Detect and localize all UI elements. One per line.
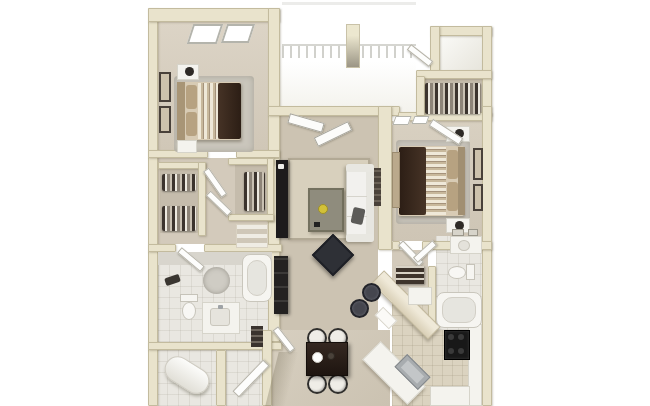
bedroom2-window-2 bbox=[412, 116, 430, 124]
kitchen-range-burner bbox=[448, 334, 454, 340]
closet1-hanging-clothes-bottom bbox=[162, 206, 196, 231]
kitchen-range-burner-4 bbox=[458, 348, 464, 354]
bedroom1-espresso-throw bbox=[218, 83, 241, 139]
bathroom2-mirror-cabinet-2 bbox=[468, 229, 478, 236]
wall-closet2-right bbox=[267, 158, 274, 222]
bathroom1-toilet-bowl bbox=[182, 302, 196, 320]
closet2-hanging-clothes bbox=[244, 172, 265, 211]
bathroom2-bathtub-basin bbox=[442, 297, 476, 323]
bedroom1-headboard bbox=[177, 82, 185, 140]
bedroom1-lamp bbox=[185, 67, 194, 76]
bedroom2-headboard bbox=[458, 147, 465, 215]
bathroom1-bathtub-basin bbox=[247, 260, 267, 296]
entry-coat-shelf bbox=[251, 326, 263, 347]
bedroom1-pillows bbox=[186, 85, 197, 109]
bathroom1-sink bbox=[210, 308, 230, 326]
closet-tr-upper-floor bbox=[440, 36, 482, 70]
balcony-column bbox=[346, 24, 360, 68]
bathroom1-round-rug bbox=[203, 267, 230, 294]
kitchen-counter-right bbox=[468, 324, 482, 406]
kitchen-pantry-shelves bbox=[396, 266, 424, 284]
wall-bedroom1-top bbox=[148, 8, 280, 22]
living-console-table bbox=[374, 168, 381, 206]
bathroom2-mirror-cabinet bbox=[452, 229, 464, 236]
bathroom2-toilet-bowl bbox=[448, 266, 466, 279]
living-remote bbox=[314, 222, 320, 227]
bedroom2-wall-art-2 bbox=[473, 184, 483, 211]
wall-balcony-right bbox=[416, 76, 425, 116]
bedroom2-window bbox=[392, 116, 411, 125]
linen-shelves bbox=[236, 224, 268, 248]
bathroom1-toilet-tank bbox=[180, 294, 198, 302]
bedroom2-espresso-throw bbox=[399, 147, 426, 215]
wall-closet-tr-divider bbox=[416, 70, 492, 79]
closet-tr-hanging-clothes bbox=[425, 83, 481, 114]
bedroom2-pillows-2 bbox=[447, 182, 458, 211]
kitchen-cabinet-upper bbox=[408, 287, 432, 305]
living-media-console bbox=[276, 160, 288, 238]
dining-centerpiece-bowl bbox=[327, 352, 335, 360]
wall-utility-right bbox=[216, 350, 226, 406]
bedroom1-nightstand-bottom bbox=[177, 140, 197, 153]
kitchen-range-burner-3 bbox=[448, 348, 454, 354]
bedroom2-pillows bbox=[447, 150, 458, 179]
bedroom2-wall-art bbox=[473, 148, 483, 180]
bathroom2-toilet-tank bbox=[466, 264, 475, 280]
wall-bathroom1-top-left bbox=[148, 244, 176, 252]
living-sofa-back-cushions bbox=[366, 166, 374, 240]
living-sofa-armrest-bottom bbox=[346, 234, 374, 242]
bathroom1-faucet bbox=[218, 305, 223, 309]
wall-bedroom1-balcony bbox=[268, 8, 280, 158]
living-bookcase bbox=[274, 256, 288, 314]
bedroom1-pillows-2 bbox=[186, 112, 197, 136]
floor-plan-render bbox=[0, 0, 650, 406]
bathroom2-sink bbox=[458, 240, 470, 251]
living-media-speaker bbox=[278, 164, 284, 169]
wall-closet-tr-left bbox=[430, 26, 440, 76]
living-yellow-bowl bbox=[318, 204, 328, 214]
balcony-top-rail bbox=[282, 2, 416, 5]
bedroom1-striped-duvet bbox=[198, 83, 218, 139]
dining-chair-4 bbox=[328, 374, 348, 394]
kitchen-range-burner-2 bbox=[458, 334, 464, 340]
bedroom2-dresser bbox=[392, 152, 400, 208]
bedroom1-wall-art bbox=[159, 72, 171, 102]
bedroom1-wall-art-2 bbox=[159, 106, 171, 133]
closet1-hanging-clothes-top bbox=[162, 174, 196, 191]
living-sofa-seam bbox=[347, 196, 367, 197]
kitchen-bar-stool-1 bbox=[362, 283, 381, 302]
kitchen-counter-bottom bbox=[430, 386, 470, 406]
wall-outer-right bbox=[482, 106, 492, 406]
living-sofa-armrest-top bbox=[346, 164, 374, 172]
wall-closet2-bottom bbox=[228, 214, 274, 221]
kitchen-bar-stool-2 bbox=[350, 299, 369, 318]
bedroom2-striped-duvet bbox=[426, 147, 446, 215]
dining-centerpiece-jug bbox=[312, 352, 323, 363]
dining-chair-3 bbox=[307, 374, 327, 394]
